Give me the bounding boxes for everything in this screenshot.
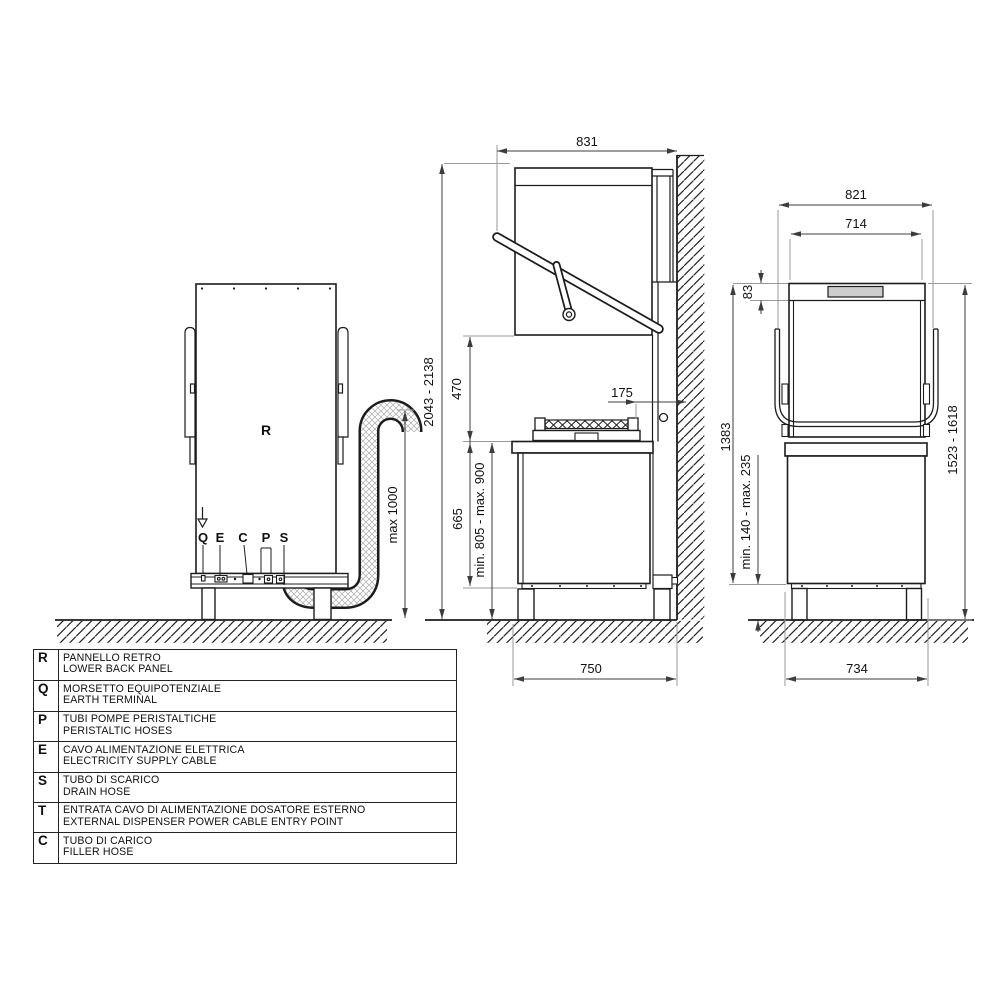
legend-row-t: T ENTRATA CAVO DI ALIMENTAZIONE DOSATORE… xyxy=(34,802,456,832)
legend-key: E xyxy=(34,742,59,771)
rear-duct xyxy=(652,170,678,442)
body-side xyxy=(518,453,650,584)
dim-width-total: 821 xyxy=(845,187,867,202)
front-leg-right xyxy=(907,589,922,621)
side-leg-rear xyxy=(654,589,670,620)
legend-line-english: FILLER HOSE xyxy=(63,847,456,859)
wall-hatch xyxy=(678,156,705,620)
earth-terminal xyxy=(202,576,206,582)
legend-line-english: ELECTRICITY SUPPLY CABLE xyxy=(63,756,456,768)
legend-line-italian: TUBO DI SCARICO xyxy=(63,775,456,787)
technical-drawing-page: 831 2043 - 2138 470 665 min. 805 - max. … xyxy=(0,0,1000,1000)
dim-hood-opening: 470 xyxy=(449,378,464,400)
wall-fixing-hole xyxy=(660,414,668,422)
dim-panel-height: 83 xyxy=(740,285,755,299)
rear-connection-box xyxy=(653,575,672,589)
legend-table: R PANNELLO RETRO LOWER BACK PANEL Q MORS… xyxy=(33,649,457,864)
legend-line-english: EXTERNAL DISPENSER POWER CABLE ENTRY POI… xyxy=(63,817,456,829)
dim-leg-height: min. 140 - max. 235 xyxy=(738,455,753,570)
back-handle-right xyxy=(338,328,348,465)
legend-line-english: LOWER BACK PANEL xyxy=(63,664,456,676)
legend-row-e: E CAVO ALIMENTAZIONE ELETTRICA ELECTRICI… xyxy=(34,741,456,771)
label-peristaltic-hoses: P xyxy=(262,530,271,545)
dim-wall-gap: 175 xyxy=(611,385,633,400)
dim-width-base: 734 xyxy=(846,661,868,676)
legend-line-english: EARTH TERMINAL xyxy=(63,695,456,707)
legend-key: T xyxy=(34,803,59,832)
dim-body-height-side: 665 xyxy=(450,508,465,530)
label-drain-hose: S xyxy=(280,530,289,545)
label-earth-terminal: Q xyxy=(198,530,208,545)
back-handle-left xyxy=(185,328,195,465)
dim-depth-base: 750 xyxy=(580,661,602,676)
front-leg-left xyxy=(792,589,807,621)
back-leg-right xyxy=(314,588,331,620)
legend-key: P xyxy=(34,712,59,741)
handle-pivot xyxy=(563,309,575,321)
dim-width-hood: 714 xyxy=(845,216,867,231)
hood-front xyxy=(789,284,925,438)
legend-key: Q xyxy=(34,681,59,710)
legend-line-english: PERISTALTIC HOSES xyxy=(63,726,456,738)
legend-key: R xyxy=(34,650,59,680)
legend-line-english: DRAIN HOSE xyxy=(63,787,456,799)
side-leg-front xyxy=(518,589,534,620)
ground-hatch-right xyxy=(760,621,968,643)
legend-key: S xyxy=(34,773,59,802)
dim-body-height-front: 1383 xyxy=(718,423,733,452)
label-supply-cable: E xyxy=(216,530,225,545)
peristaltic-port-1 xyxy=(265,576,273,584)
dim-work-height: min. 805 - max. 900 xyxy=(472,463,487,578)
side-view xyxy=(425,155,704,643)
label-back-panel: R xyxy=(261,422,271,438)
tank-top-front xyxy=(785,443,927,456)
label-filler-hose: C xyxy=(238,530,248,545)
dim-drain-hose-height: max 1000 xyxy=(385,486,400,543)
filler-hose-port xyxy=(243,575,253,584)
dim-height-closed: 1523 - 1618 xyxy=(945,405,960,474)
dim-depth-total: 831 xyxy=(576,134,598,149)
back-view xyxy=(55,284,412,643)
back-leg-left xyxy=(202,588,215,620)
legend-row-c: C TUBO DI CARICO FILLER HOSE xyxy=(34,832,456,862)
dim-height-total: 2043 - 2138 xyxy=(421,357,436,426)
front-view xyxy=(748,284,974,643)
body-front xyxy=(788,456,926,584)
control-panel-display xyxy=(828,287,883,298)
peristaltic-port-2 xyxy=(277,576,285,584)
ground-hatch-middle xyxy=(487,621,703,643)
dish-rack xyxy=(533,418,640,441)
legend-row-q: Q MORSETTO EQUIPOTENZIALE EARTH TERMINAL xyxy=(34,680,456,710)
legend-key: C xyxy=(34,833,59,862)
ground-hatch-left xyxy=(57,621,387,643)
legend-row-p: P TUBI POMPE PERISTALTICHE PERISTALTIC H… xyxy=(34,711,456,741)
legend-row-s: S TUBO DI SCARICO DRAIN HOSE xyxy=(34,772,456,802)
legend-row-r: R PANNELLO RETRO LOWER BACK PANEL xyxy=(34,650,456,680)
tank-top-side xyxy=(512,442,653,454)
